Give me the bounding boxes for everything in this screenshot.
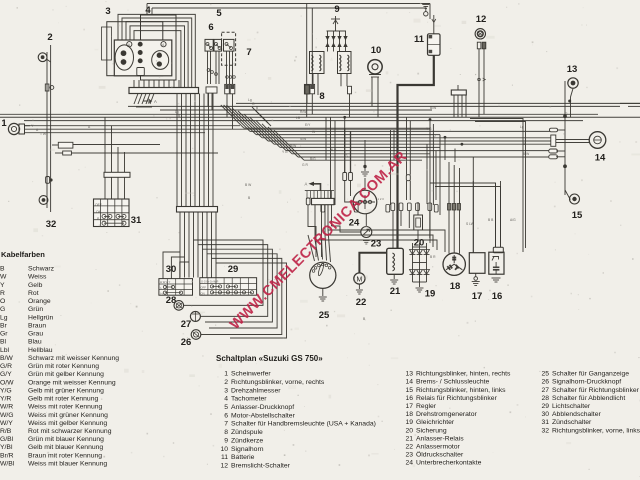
svg-text:Zündkerze: Zündkerze	[231, 437, 263, 444]
svg-text:Signalhorn-Druckknopf: Signalhorn-Druckknopf	[552, 379, 621, 386]
svg-text:31: 31	[541, 419, 549, 426]
svg-text:Anlasser-Druckknopf: Anlasser-Druckknopf	[231, 404, 294, 411]
svg-text:Drehstromgenerator: Drehstromgenerator	[416, 411, 478, 418]
svg-text:19: 19	[405, 419, 413, 426]
svg-text:5: 5	[224, 404, 228, 411]
svg-text:29: 29	[541, 403, 549, 410]
svg-text:Lg: Lg	[0, 314, 8, 321]
svg-text:10: 10	[371, 45, 382, 56]
svg-text:3: 3	[224, 387, 228, 394]
svg-text:Richtungsblinker, hinten, link: Richtungsblinker, hinten, links	[416, 387, 506, 394]
svg-text:B/W: B/W	[0, 355, 13, 362]
svg-text:Lichtschalter: Lichtschalter	[552, 403, 591, 410]
svg-text:W/Y: W/Y	[0, 420, 13, 427]
svg-text:Bremslicht-Schalter: Bremslicht-Schalter	[231, 463, 291, 470]
svg-text:B R: B R	[430, 255, 436, 259]
svg-text:B/W: B/W	[290, 144, 297, 148]
svg-text:25: 25	[541, 371, 549, 378]
svg-text:OFF: OFF	[201, 285, 207, 289]
svg-text:E/Y: E/Y	[305, 123, 311, 127]
svg-text:Drehzahlmesser: Drehzahlmesser	[231, 387, 281, 394]
svg-text:B: B	[0, 266, 5, 273]
svg-text:W R: W R	[330, 148, 337, 152]
svg-text:Schwarz mit weisser Kennung: Schwarz mit weisser Kennung	[28, 355, 119, 362]
svg-text:T W: T W	[40, 132, 47, 136]
svg-text:Signalhorn: Signalhorn	[231, 446, 264, 453]
svg-text:G/Bl: G/Bl	[0, 436, 14, 443]
svg-text:25: 25	[319, 310, 330, 321]
svg-text:19: 19	[425, 289, 436, 300]
svg-text:23: 23	[405, 452, 413, 459]
svg-text:OFF: OFF	[95, 203, 102, 207]
svg-text:6: 6	[224, 412, 228, 419]
svg-text:Rıchtungsblinker, vorne, recht: Rıchtungsblinker, vorne, rechts	[231, 379, 325, 386]
svg-text:G R: G R	[302, 163, 308, 167]
svg-text:1 2 3: 1 2 3	[378, 197, 385, 201]
svg-text:W/G: W/G	[0, 412, 14, 419]
svg-text:7: 7	[224, 421, 228, 428]
svg-text:Y G: Y G	[426, 127, 432, 131]
svg-text:G/Y: G/Y	[0, 371, 12, 378]
svg-text:Orange mit weisser Kennung: Orange mit weisser Kennung	[28, 379, 116, 386]
svg-text:Scheinwerfer: Scheinwerfer	[231, 371, 271, 378]
svg-text:W/R: W/R	[0, 404, 13, 411]
svg-text:6: 6	[208, 22, 213, 33]
svg-text:Gelb: Gelb	[28, 282, 43, 289]
svg-text:9: 9	[334, 4, 339, 15]
svg-text:27: 27	[181, 319, 192, 330]
svg-text:13: 13	[567, 64, 578, 75]
svg-text:7: 7	[246, 47, 251, 58]
svg-text:Schalter für Handbremsleuchte: Schalter für Handbremsleuchte (USA + Kan…	[231, 421, 376, 428]
svg-text:18: 18	[405, 411, 413, 418]
svg-text:3: 3	[105, 6, 110, 17]
svg-text:Y/G: Y/G	[0, 387, 12, 394]
svg-text:Schalter für Abblendlicht: Schalter für Abblendlicht	[552, 395, 625, 402]
svg-text:Rot mit schwarzer Kennung: Rot mit schwarzer Kennung	[28, 428, 112, 435]
svg-text:Grün: Grün	[28, 306, 43, 313]
svg-text:Orange: Orange	[28, 298, 51, 305]
svg-text:A: A	[305, 182, 308, 187]
svg-text:Bl: Bl	[0, 339, 7, 346]
svg-text:31: 31	[131, 215, 142, 226]
svg-text:15: 15	[405, 387, 413, 394]
svg-text:30: 30	[541, 411, 549, 418]
svg-text:Br/R: Br/R	[0, 452, 14, 459]
svg-text:32: 32	[46, 219, 57, 230]
svg-text:Y/Bl: Y/Bl	[0, 444, 13, 451]
svg-text:21: 21	[390, 286, 401, 297]
svg-text:Regler: Regler	[416, 403, 437, 410]
svg-text:S/W: S/W	[300, 137, 307, 141]
svg-text:Grün mit roter Kennung: Grün mit roter Kennung	[28, 363, 99, 370]
svg-text:ON: ON	[201, 291, 205, 295]
svg-text:28: 28	[541, 395, 549, 402]
svg-text:H W A Y: H W A Y	[160, 280, 170, 284]
svg-text:Zündspule: Zündspule	[231, 429, 263, 436]
svg-text:Weiss mit gelber Kennung: Weiss mit gelber Kennung	[28, 420, 107, 427]
svg-text:G: G	[565, 112, 568, 116]
svg-text:Blau: Blau	[28, 339, 42, 346]
svg-text:Anlassermotor: Anlassermotor	[416, 444, 461, 451]
svg-text:Rot: Rot	[28, 290, 39, 297]
svg-text:22: 22	[356, 297, 367, 308]
svg-text:Schalter für Richtungsblinker: Schalter für Richtungsblinker	[552, 387, 640, 394]
svg-text:R/W: R/W	[300, 110, 307, 114]
svg-text:16: 16	[405, 395, 413, 402]
svg-text:Grün mit gelber Kennung: Grün mit gelber Kennung	[28, 371, 104, 378]
svg-text:Lbl: Lbl	[0, 347, 10, 354]
svg-text:Abblendschalter: Abblendschalter	[552, 411, 601, 418]
svg-text:26: 26	[181, 337, 192, 348]
svg-text:Brems- / Schlussleuchte: Brems- / Schlussleuchte	[416, 379, 490, 386]
svg-text:Gelb mit grüner Kennung: Gelb mit grüner Kennung	[28, 387, 104, 394]
svg-text:Weiss mit blauer Kennung: Weiss mit blauer Kennung	[28, 461, 107, 468]
svg-text:H: H	[161, 291, 163, 295]
svg-text:Sicherung: Sicherung	[416, 427, 447, 434]
svg-text:8: 8	[319, 91, 324, 102]
svg-text:W: W	[0, 274, 7, 281]
svg-text:28: 28	[166, 295, 177, 306]
svg-text:W/Bl: W/Bl	[0, 461, 15, 468]
svg-text:Weiss mit roter Kennung: Weiss mit roter Kennung	[28, 404, 103, 411]
svg-text:1: 1	[224, 371, 228, 378]
svg-text:30: 30	[166, 264, 177, 275]
svg-text:Relais für Richtungsblinker: Relais für Richtungsblinker	[416, 395, 498, 402]
svg-text:Gleichrichter: Gleichrichter	[416, 419, 455, 426]
svg-text:G/R: G/R	[0, 363, 12, 370]
svg-text:14: 14	[405, 379, 413, 386]
svg-text:A/G: A/G	[510, 218, 516, 222]
svg-text:2: 2	[224, 379, 228, 386]
svg-text:O: O	[433, 134, 436, 138]
svg-text:11: 11	[221, 454, 228, 461]
svg-text:11: 11	[414, 34, 425, 45]
svg-text:5: 5	[216, 8, 222, 19]
svg-text:ON: ON	[96, 210, 102, 214]
svg-text:B W: B W	[245, 183, 252, 187]
svg-text:Batterie: Batterie	[231, 454, 255, 461]
svg-text:4: 4	[224, 396, 228, 403]
svg-text:O: O	[252, 102, 255, 106]
svg-text:12: 12	[476, 14, 487, 25]
svg-text:Motor-Abstellschalter: Motor-Abstellschalter	[231, 412, 296, 419]
svg-text:Hellgrün: Hellgrün	[28, 314, 54, 321]
svg-text:Br: Br	[0, 322, 8, 329]
svg-text:13: 13	[405, 371, 413, 378]
svg-text:Y/R: Y/R	[0, 396, 11, 403]
svg-text:Unterbrecherkontakte: Unterbrecherkontakte	[416, 460, 482, 467]
svg-text:32: 32	[541, 427, 549, 434]
svg-text:20: 20	[405, 427, 413, 434]
svg-text:Weiss mit grüner Kennung: Weiss mit grüner Kennung	[28, 412, 108, 419]
svg-text:Gelb mit roter Kennung: Gelb mit roter Kennung	[28, 396, 98, 403]
svg-text:Schalter für Ganganzeige: Schalter für Ganganzeige	[552, 371, 629, 378]
svg-text:Schwarz: Schwarz	[28, 266, 55, 273]
svg-text:A: A	[154, 99, 157, 104]
svg-text:B/W: B/W	[430, 106, 437, 110]
svg-text:G: G	[0, 306, 5, 313]
svg-text:B/G: B/G	[310, 157, 316, 161]
svg-text:Grau: Grau	[28, 331, 43, 338]
svg-text:B B: B B	[488, 218, 494, 222]
svg-text:1: 1	[1, 118, 7, 129]
svg-text:Braun: Braun	[28, 322, 46, 329]
svg-text:R/B: R/B	[0, 428, 12, 435]
svg-text:Grün mit blauer Kennung: Grün mit blauer Kennung	[28, 436, 104, 443]
svg-text:Weiss: Weiss	[28, 274, 47, 281]
svg-text:Kabelfarben: Kabelfarben	[1, 250, 45, 259]
svg-text:Braun mit roter Kennung: Braun mit roter Kennung	[28, 452, 102, 459]
svg-text:Tachometer: Tachometer	[231, 396, 267, 403]
svg-text:9: 9	[224, 437, 228, 444]
svg-text:8: 8	[224, 429, 228, 436]
svg-text:O G Br Gr W R: O G Br Gr W R	[201, 279, 219, 283]
svg-text:Gr: Gr	[0, 331, 8, 338]
svg-text:17: 17	[405, 403, 413, 410]
svg-text:G: G	[345, 154, 348, 158]
svg-text:27: 27	[541, 387, 549, 394]
svg-text:2: 2	[47, 32, 52, 43]
svg-text:29: 29	[228, 264, 239, 275]
svg-text:12: 12	[220, 463, 228, 470]
svg-text:Y G: Y G	[282, 150, 288, 154]
svg-text:22: 22	[405, 444, 413, 451]
svg-text:Zündschalter: Zündschalter	[552, 419, 592, 426]
svg-text:O: O	[0, 298, 5, 305]
svg-text:R: R	[0, 290, 5, 297]
svg-text:Hellblau: Hellblau	[28, 347, 53, 354]
svg-text:B W: B W	[523, 152, 530, 156]
svg-text:23: 23	[371, 239, 382, 250]
svg-text:Gelb mit blauer Kennung: Gelb mit blauer Kennung	[28, 444, 103, 451]
svg-text:Richtungsblinker, hinten, rech: Richtungsblinker, hinten, rechts	[416, 371, 511, 378]
svg-text:24: 24	[405, 460, 413, 467]
svg-text:17: 17	[472, 291, 483, 302]
svg-text:26: 26	[541, 379, 549, 386]
svg-text:10: 10	[220, 446, 228, 453]
svg-text:16: 16	[492, 291, 503, 302]
svg-text:Y: Y	[0, 282, 5, 289]
svg-text:21: 21	[405, 435, 413, 442]
svg-text:18: 18	[450, 281, 461, 292]
svg-text:Anlasser-Relais: Anlasser-Relais	[416, 435, 464, 442]
svg-text:14: 14	[595, 153, 606, 164]
svg-text:15: 15	[572, 210, 583, 221]
